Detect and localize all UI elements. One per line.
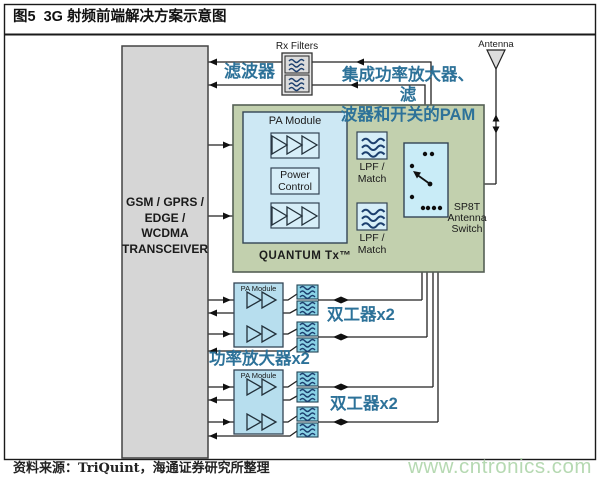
figure-3g-rf-frontend: 图5 3G 射频前端解决方案示意图 Rx Filters Antenna 滤波器… — [0, 0, 600, 485]
diagram-canvas — [0, 0, 600, 485]
source-note: 资料来源：TriQuint，海通证券研究所整理 — [13, 462, 270, 476]
transceiver-line1: GSM / GPRS / — [122, 195, 208, 211]
duplexer-bank-2 — [297, 372, 318, 437]
figure-title: 图5 3G 射频前端解决方案示意图 — [13, 10, 227, 26]
lpf-match-label-2: LPF / Match — [352, 233, 392, 256]
duplexer-annotation-1: 双工器x2 — [327, 306, 395, 324]
lpf-line1: LPF / — [352, 233, 392, 245]
lpf-line2: Match — [352, 174, 392, 186]
pam-annotation-line1: 集成功率放大器、滤 — [338, 65, 478, 105]
rx-filters-label: Rx Filters — [267, 41, 327, 52]
duplexer-annotation-2: 双工器x2 — [330, 395, 398, 413]
transceiver-line3: TRANSCEIVER — [122, 242, 208, 258]
power-control-label: Power Control — [271, 169, 319, 193]
power-amp-annotation: 功率放大器x2 — [209, 350, 310, 368]
lpf-match-box-2 — [357, 203, 387, 230]
quantum-tx-label: QUANTUM Tx™ — [259, 250, 351, 263]
transceiver-line2: EDGE / WCDMA — [122, 211, 208, 242]
power-control-line1: Power — [271, 169, 319, 181]
duplexer-bank-1 — [297, 285, 318, 352]
filter-annotation: 滤波器 — [224, 63, 275, 82]
pa-module-small-label-1: PA Module — [234, 285, 283, 293]
rx-filters-box — [282, 53, 312, 95]
power-control-line2: Control — [271, 181, 319, 193]
pa-module-label: PA Module — [243, 115, 347, 127]
pam-annotation: 集成功率放大器、滤 波器和开关的PAM — [338, 65, 478, 125]
sp8t-switch-label: SP8T Antenna Switch — [440, 202, 494, 235]
lpf-match-box-1 — [357, 132, 387, 159]
antenna-icon — [487, 50, 505, 69]
antenna-label: Antenna — [466, 40, 526, 50]
watermark: www.cntronics.com — [400, 456, 592, 479]
lpf-line1: LPF / — [352, 162, 392, 174]
pa-module-small-label-2: PA Module — [234, 372, 283, 380]
lpf-match-label-1: LPF / Match — [352, 162, 392, 185]
lpf-line2: Match — [352, 245, 392, 257]
sp8t-line3: Switch — [440, 224, 494, 235]
pam-annotation-line2: 波器和开关的PAM — [338, 105, 478, 125]
transceiver-label: GSM / GPRS / EDGE / WCDMA TRANSCEIVER — [122, 195, 208, 257]
